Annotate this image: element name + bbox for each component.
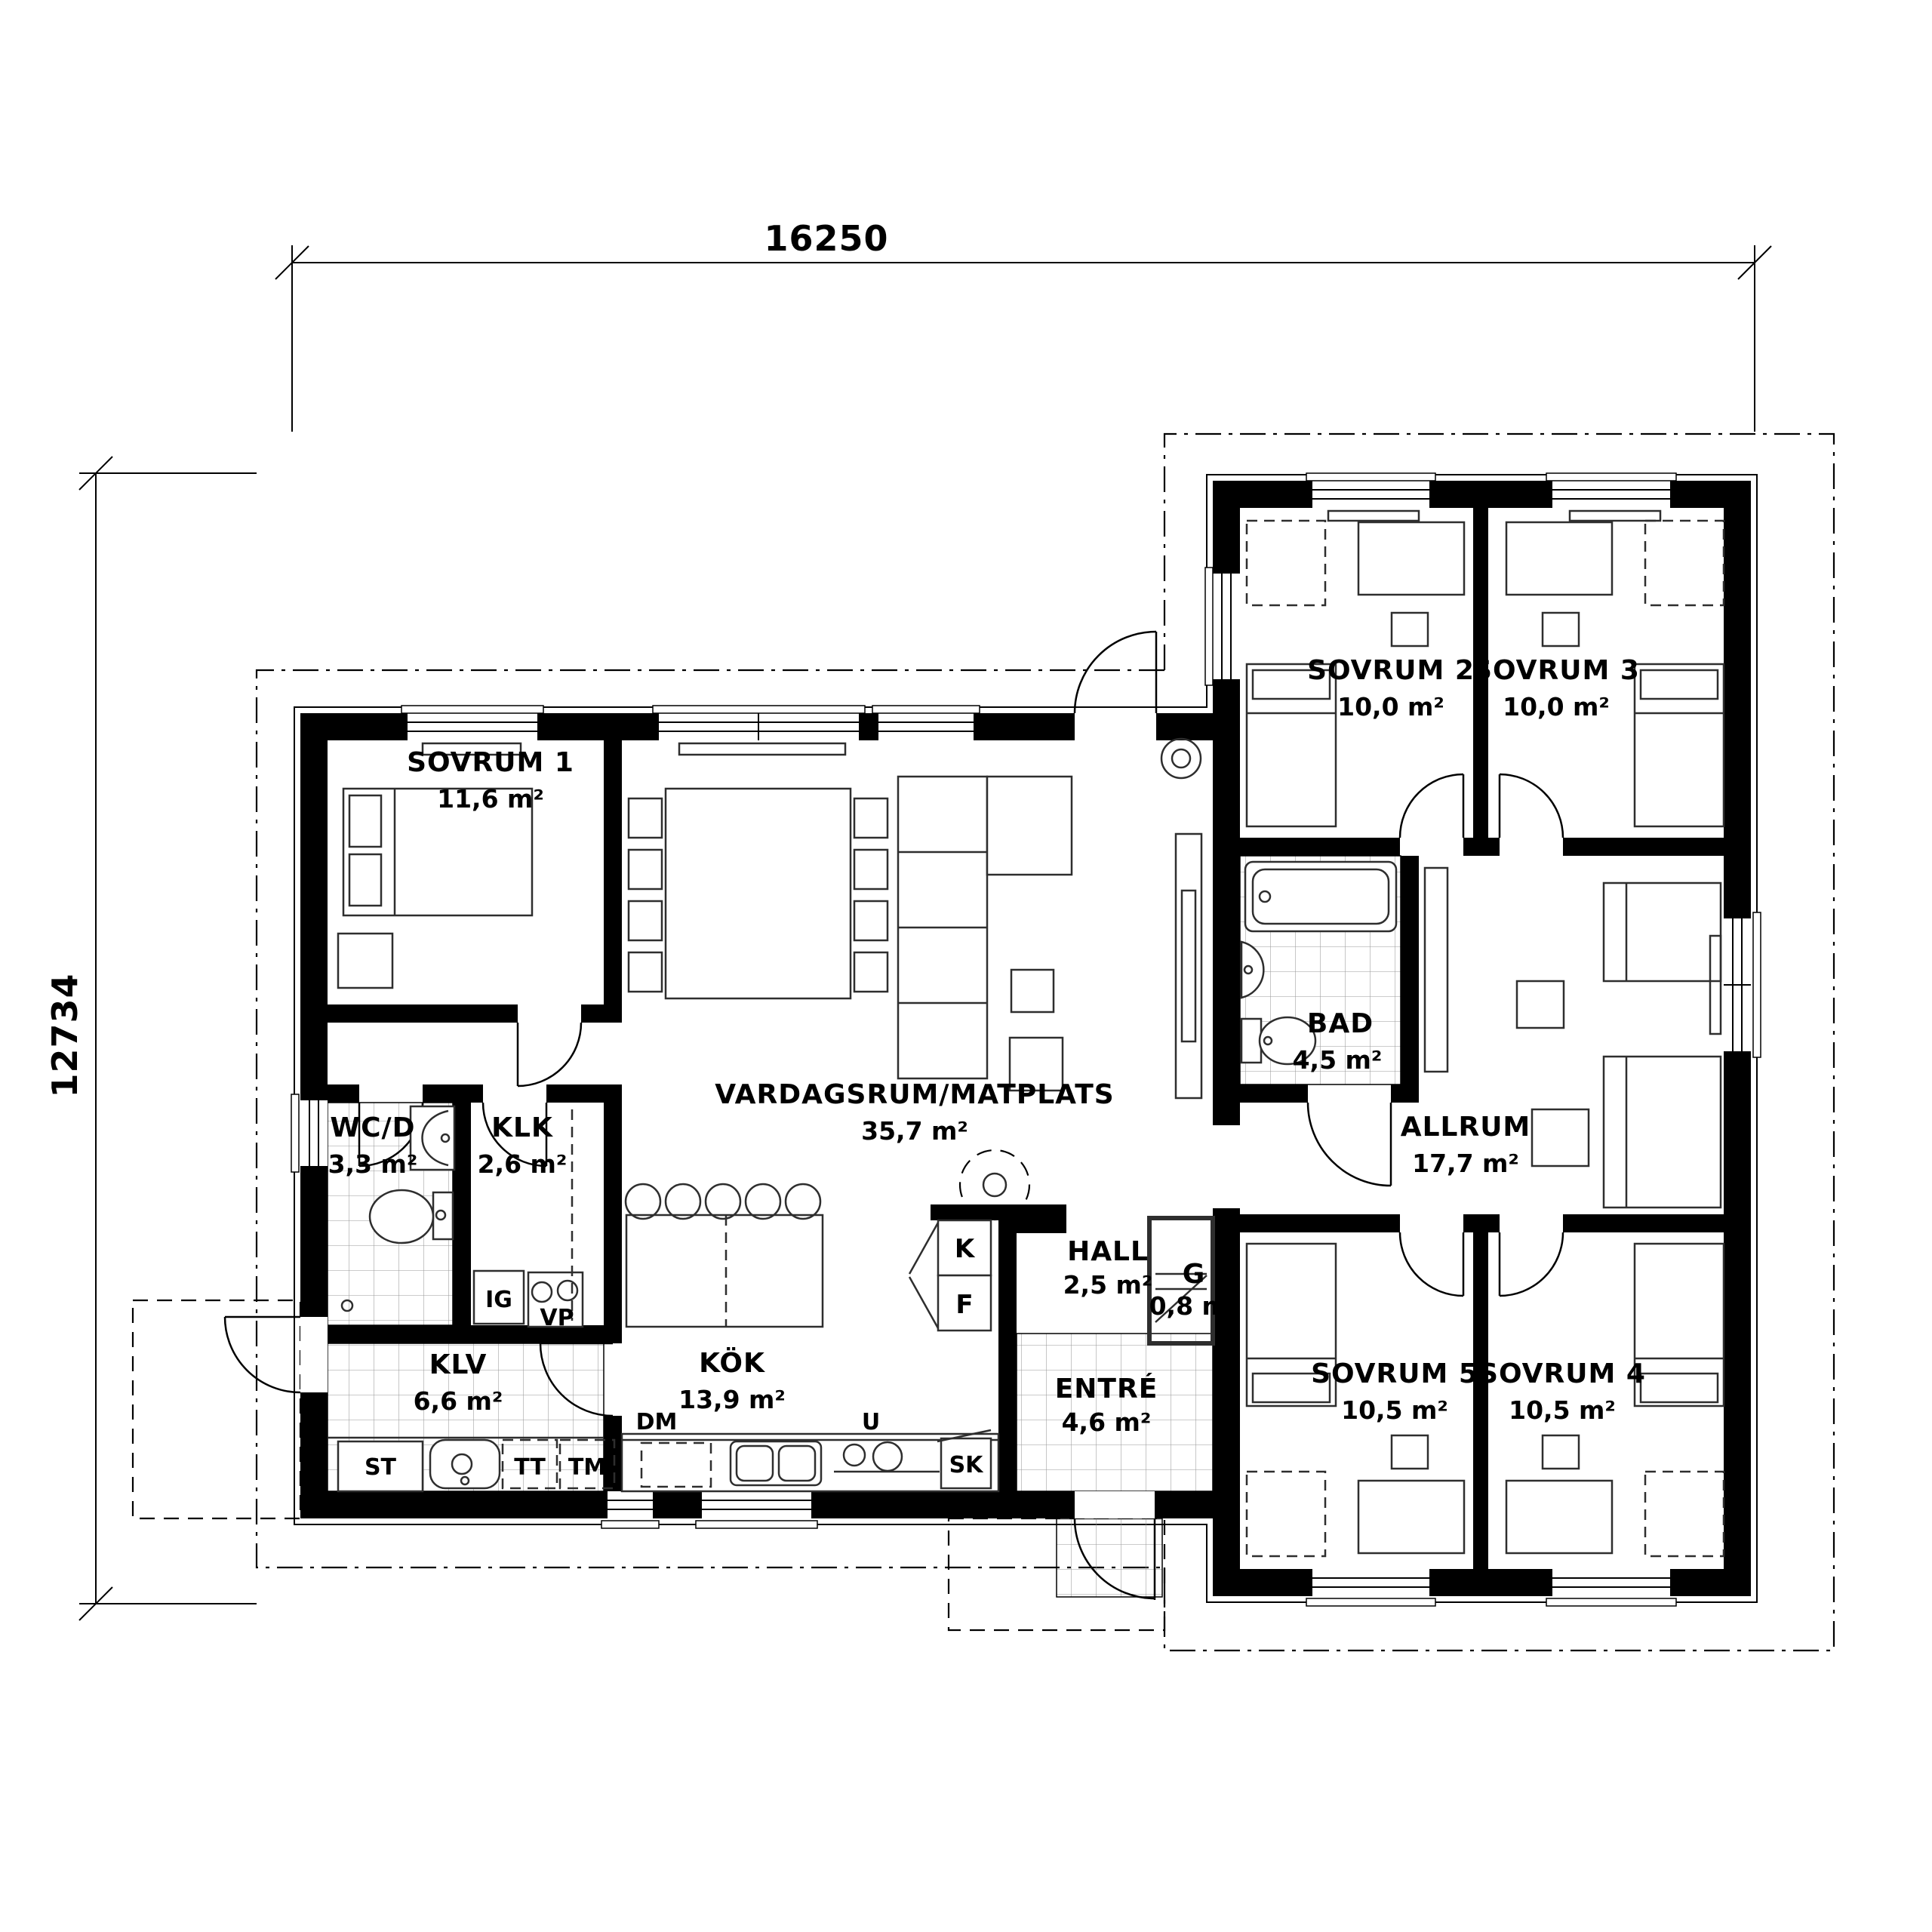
label-sk: SK [949, 1452, 985, 1478]
floor-plan-canvas: SOVRUM 1 11,6 m² SOVRUM 2 10,0 m² SOVRUM… [0, 0, 1932, 1932]
coffee-table [1011, 970, 1054, 1012]
window-sovrum2-top [1306, 473, 1435, 508]
window-klv [601, 1491, 659, 1528]
toilet-icon [370, 1190, 453, 1243]
label-u: U [862, 1409, 880, 1435]
room-label-hall: HALL [1067, 1236, 1149, 1267]
chair [1543, 1435, 1579, 1469]
dimension-left-value: 12734 [45, 973, 85, 1097]
window-sovrum3-top [1546, 473, 1676, 508]
room-area-hall: 2,5 m² [1063, 1270, 1153, 1300]
window-sovrum4-bottom [1546, 1569, 1676, 1606]
desk [1358, 1481, 1464, 1553]
room-area-sovrum3: 10,0 m² [1503, 692, 1610, 721]
room-label-sovrum4: SOVRUM 4 [1478, 1358, 1646, 1389]
room-label-sovrum2: SOVRUM 2 [1307, 655, 1475, 686]
sofa-chaise [987, 777, 1072, 875]
desk [1506, 1481, 1612, 1553]
room-area-allrum: 17,7 m² [1412, 1149, 1519, 1178]
room-area-sovrum5: 10,5 m² [1341, 1395, 1448, 1425]
desk [1506, 522, 1612, 595]
label-ig: IG [485, 1287, 512, 1313]
room-label-kok: KÖK [699, 1347, 765, 1379]
label-st: ST [365, 1454, 397, 1481]
room-area-vardagsrum: 35,7 m² [861, 1116, 968, 1146]
window-kok [696, 1491, 817, 1528]
room-area-kok: 13,9 m² [678, 1385, 786, 1414]
sovrum1-armchair [338, 934, 392, 988]
room-label-sovrum1: SOVRUM 1 [407, 747, 574, 778]
room-label-sovrum5: SOVRUM 5 [1311, 1358, 1478, 1389]
window-sovrum1 [401, 706, 543, 740]
room-area-sovrum2: 10,0 m² [1337, 692, 1444, 721]
room-area-entre: 4,6 m² [1062, 1407, 1152, 1437]
window-sovrum2-side [1205, 568, 1240, 685]
room-area-klk: 2,6 m² [478, 1149, 568, 1179]
room-label-klv: KLV [429, 1349, 488, 1380]
label-k: K [955, 1234, 976, 1264]
window-allrum-right [1724, 912, 1761, 1057]
allrum-sofa-bottom [1604, 1057, 1721, 1207]
label-tm: TM [568, 1454, 606, 1481]
room-label-allrum: ALLRUM [1401, 1112, 1531, 1143]
room-label-klk: KLK [491, 1112, 553, 1143]
label-f: F [955, 1290, 973, 1320]
room-label-bad: BAD [1307, 1008, 1374, 1039]
room-area-wcd: 3,3 m² [328, 1149, 418, 1179]
bathtub-icon [1245, 862, 1396, 931]
room-label-vardagsrum: VARDAGSRUM/MATPLATS [715, 1079, 1114, 1110]
window-vardagsrum [872, 706, 980, 740]
room-area-bad: 4,5 m² [1293, 1045, 1383, 1075]
dining-table [629, 789, 888, 998]
tv-icon [1182, 891, 1195, 1041]
desk [1358, 522, 1464, 595]
room-label-entre: ENTRÉ [1055, 1373, 1158, 1404]
room-area-klv: 6,6 m² [414, 1386, 503, 1416]
room-area-g: 0,8 m² [1149, 1291, 1239, 1321]
window-sovrum5-bottom [1306, 1569, 1435, 1606]
room-area-sovrum4: 10,5 m² [1509, 1395, 1616, 1425]
allrum-side-table [1517, 981, 1564, 1028]
chair [1392, 1435, 1428, 1469]
room-area-sovrum1: 11,6 m² [437, 784, 544, 814]
allrum-sofa-top [1604, 883, 1721, 981]
laundry-sink-icon [430, 1440, 500, 1488]
label-vp: VP [540, 1305, 574, 1331]
room-label-g: G [1183, 1259, 1206, 1290]
chair [1543, 613, 1579, 646]
chair [1392, 613, 1428, 646]
window-wcd [291, 1094, 328, 1172]
hall-allrum-opening [1213, 1124, 1240, 1209]
allrum-armchair [1532, 1109, 1589, 1166]
kitchen-sink-icon [731, 1441, 821, 1485]
room-label-wcd: WC/D [330, 1112, 415, 1143]
label-dm: DM [636, 1409, 678, 1435]
allrum-sideboard [1425, 868, 1447, 1072]
label-tt: TT [514, 1454, 546, 1481]
window-dining [653, 706, 865, 740]
dimension-top-value: 16250 [764, 218, 888, 259]
room-label-sovrum3: SOVRUM 3 [1472, 655, 1640, 686]
